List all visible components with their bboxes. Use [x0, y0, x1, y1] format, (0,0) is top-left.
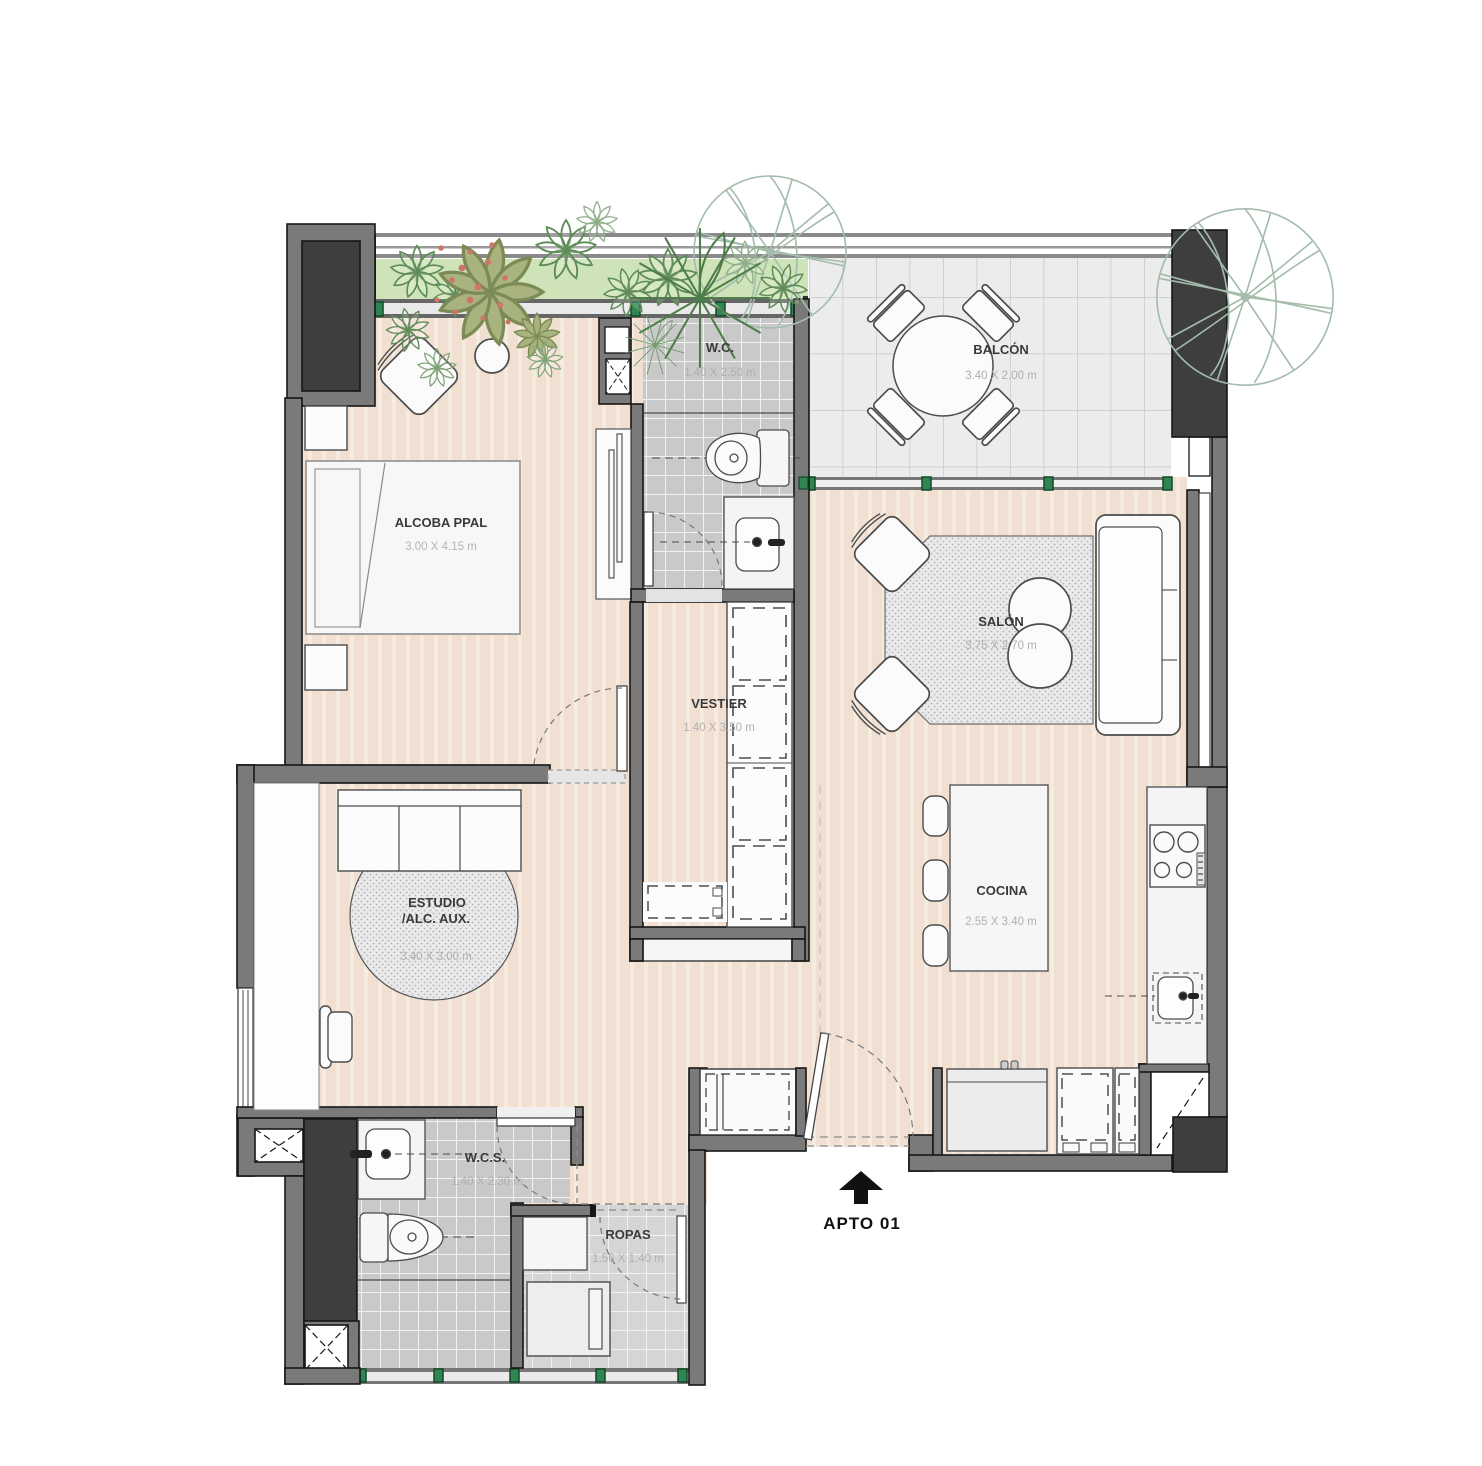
svg-text:VESTIER: VESTIER	[691, 696, 747, 711]
svg-text:1.40 X 2.30 m: 1.40 X 2.30 m	[451, 1176, 523, 1188]
svg-text:ESTUDIO: ESTUDIO	[408, 895, 466, 910]
svg-text:SALÓN: SALÓN	[978, 614, 1024, 629]
svg-text:3.75 X 2.70 m: 3.75 X 2.70 m	[965, 640, 1037, 652]
svg-text:ROPAS: ROPAS	[605, 1227, 651, 1242]
svg-text:3.40 X 3.00 m: 3.40 X 3.00 m	[400, 951, 472, 963]
svg-text:/ALC. AUX.: /ALC. AUX.	[402, 911, 470, 926]
svg-text:2.55 X 3.40 m: 2.55 X 3.40 m	[965, 916, 1037, 928]
svg-text:BALCÓN: BALCÓN	[973, 342, 1029, 357]
svg-text:1.40 X 2.50 m: 1.40 X 2.50 m	[684, 367, 756, 379]
svg-text:ALCOBA PPAL: ALCOBA PPAL	[395, 515, 488, 530]
svg-text:W.C.: W.C.	[706, 340, 734, 355]
svg-text:1.40 X 3.50 m: 1.40 X 3.50 m	[683, 722, 755, 734]
svg-text:1.56 X 1.40 m: 1.56 X 1.40 m	[592, 1253, 664, 1265]
svg-text:3.40 X 2.00 m: 3.40 X 2.00 m	[965, 370, 1037, 382]
svg-text:COCINA: COCINA	[976, 883, 1028, 898]
svg-text:APTO 01: APTO 01	[823, 1214, 901, 1233]
svg-text:3.00 X 4.15 m: 3.00 X 4.15 m	[405, 541, 477, 553]
svg-text:W.C.S.: W.C.S.	[465, 1150, 505, 1165]
